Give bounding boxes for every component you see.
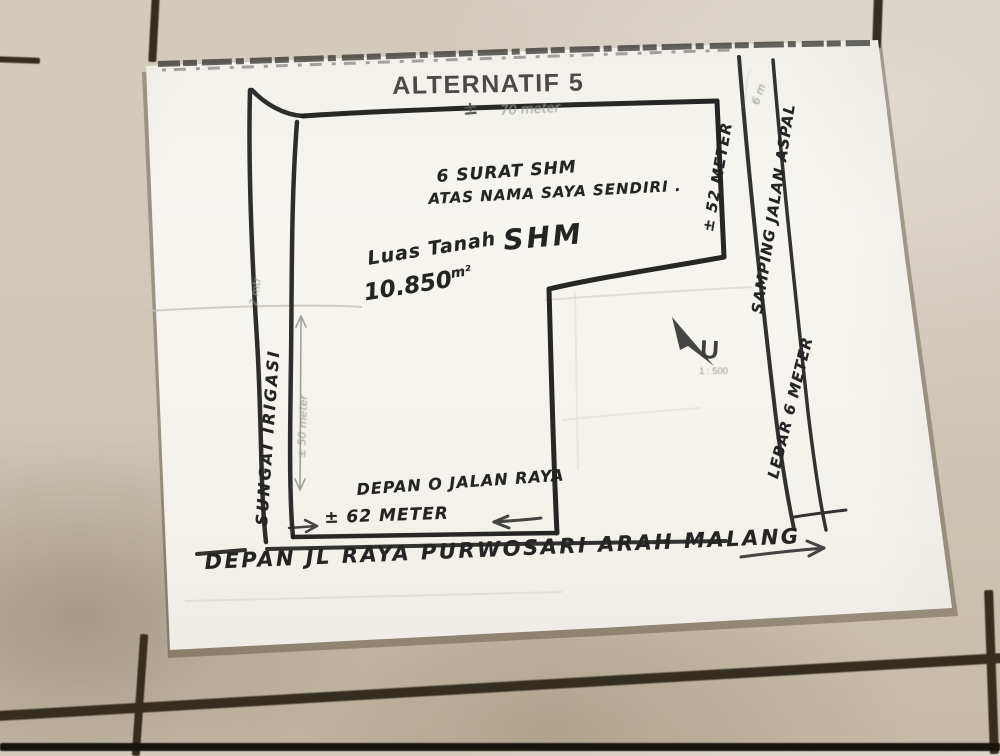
certificate-type-label: SHM [502,217,585,257]
left-boundary-length-label: ± 50 meter [295,395,310,459]
land-area-unit: m² [450,263,473,282]
tile-grout-line [148,0,159,62]
tile-grout-line [132,634,148,756]
tile-grout-line [0,650,1000,722]
top-width-plusminus: ± [462,98,479,120]
page-title: ALTERNATIF 5 [392,69,585,101]
top-width-label: 70 meter [500,101,560,119]
tile-grout-line [984,590,999,754]
photo-of-hand-drawn-land-sketch: { "colors": { "floor": "#cfc6b6", "grout… [0,0,1000,750]
scale-note: 1 : 500 [699,366,728,377]
north-letter: U [699,334,719,366]
tile-grout-line [0,56,40,64]
